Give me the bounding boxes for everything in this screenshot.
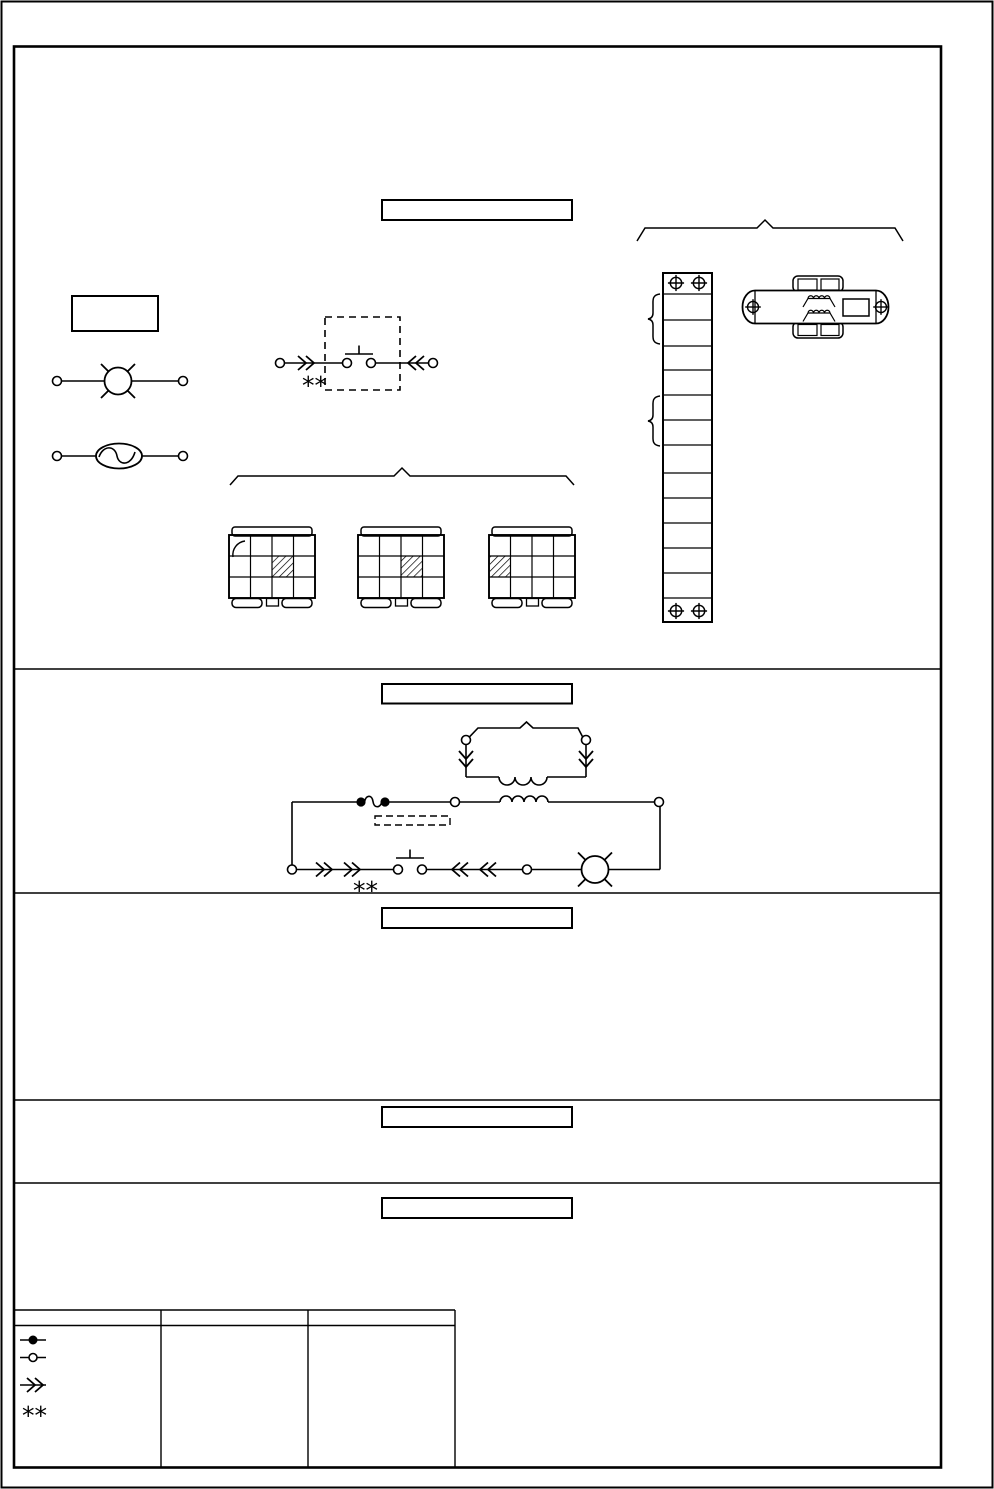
screw-icon (668, 603, 684, 619)
closed-terminal-icon (357, 798, 365, 806)
terminal-group-brace-2 (648, 396, 660, 446)
open-terminal-icon (29, 1354, 37, 1362)
screw-icon (691, 603, 707, 619)
double-asterisk-mark: ** (22, 1401, 47, 1430)
closed-terminal-icon (381, 798, 389, 806)
coil-icon (499, 777, 547, 785)
wiring-diagram-page: ** (0, 0, 994, 1489)
double-asterisk-mark: ** (353, 876, 378, 905)
push-button-switch-assembly (276, 317, 438, 390)
legend-table (14, 1310, 455, 1467)
screw-icon (691, 275, 707, 291)
legend-symbol-connector-chevron (20, 1378, 46, 1392)
section-title-box-5 (382, 1198, 572, 1218)
section-title-box-2 (382, 684, 572, 704)
page-frame (2, 2, 993, 1488)
thermal-link-wave (365, 796, 383, 806)
closed-terminal-icon (29, 1336, 37, 1344)
legend-symbol-filled-terminal (20, 1336, 46, 1344)
lamp-symbol (53, 364, 188, 398)
hatched-pin-cell (402, 557, 423, 578)
screw-icon (668, 275, 684, 291)
section-dividers (14, 669, 941, 1183)
hatched-pin-cell (490, 557, 511, 578)
key-notch-arc (233, 541, 245, 557)
connector-block-1 (229, 527, 315, 608)
terminal-strip (663, 273, 712, 622)
filter-component (743, 276, 889, 338)
scanned-manual-page: ** (0, 0, 994, 1489)
dashed-component-outline (375, 816, 450, 825)
lamp-icon (578, 853, 612, 887)
switch-lamp-line-circuit (288, 850, 661, 887)
section-title-box-4 (382, 1107, 572, 1127)
part-label-box (72, 296, 158, 331)
section-title-box-3 (382, 908, 572, 928)
section-title-box-1 (382, 200, 572, 220)
double-asterisk-mark: ** (302, 371, 327, 400)
terminal-group-brace-1 (648, 294, 660, 344)
coil-icon (500, 796, 548, 802)
connector-block-3 (489, 527, 575, 608)
legend-symbol-open-terminal (20, 1354, 46, 1362)
connector-block-2 (358, 527, 444, 608)
connector-blocks-brace (230, 468, 574, 485)
supply-line-circuit (292, 796, 664, 870)
terminal-strip-brace (637, 220, 903, 241)
thermal-fuse-symbol (53, 444, 188, 469)
legend-symbol-double-asterisk: ** (22, 1401, 47, 1430)
hatched-pin-cell (273, 557, 294, 578)
heater-loop-circuit (459, 722, 593, 785)
